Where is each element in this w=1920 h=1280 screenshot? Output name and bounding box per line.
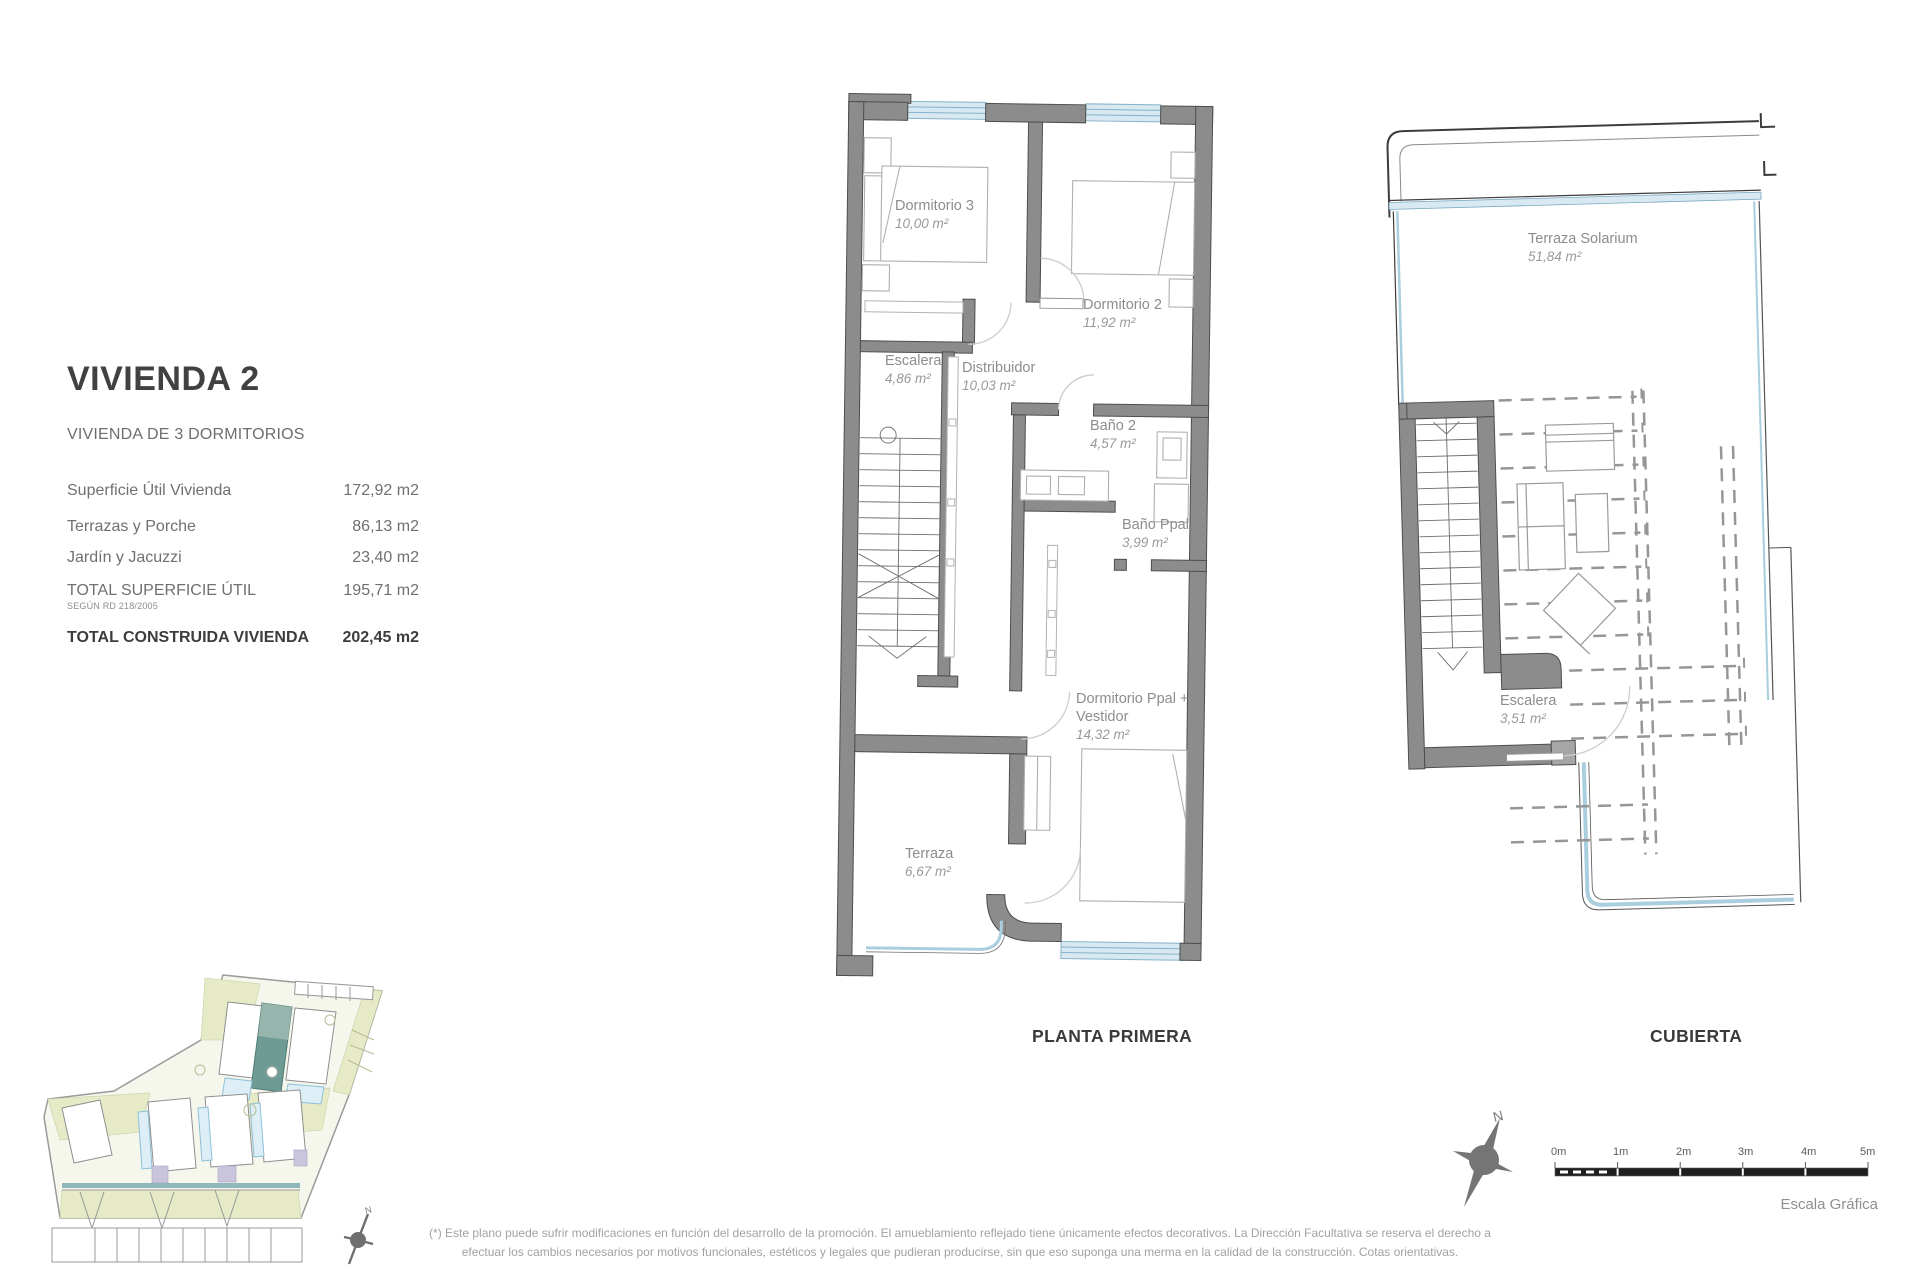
room-label-dormitorio3: Dormitorio 3 10,00 m²	[895, 197, 974, 233]
caption-cubierta: CUBIERTA	[1650, 1026, 1742, 1047]
scale-bar	[1555, 1162, 1868, 1176]
surface-row-value: 23,40 m2	[352, 549, 419, 567]
surface-row-label: Superficie Útil Vivienda	[67, 482, 231, 500]
solarium-boundary	[1393, 201, 1801, 916]
surface-total-row: TOTAL CONSTRUIDA VIVIENDA 202,45 m2	[67, 629, 419, 647]
surface-row: Superficie Útil Vivienda 172,92 m2	[67, 482, 419, 500]
scale-tick: 4m	[1801, 1146, 1816, 1158]
room-label-terraza: Terraza 6,67 m²	[905, 845, 953, 881]
north-arrow-icon	[1453, 1118, 1513, 1207]
roof-stairs	[1416, 417, 1483, 671]
room-label-dormitorio2: Dormitorio 2 11,92 m²	[1083, 296, 1162, 332]
scale-tick: 3m	[1738, 1146, 1753, 1158]
room-label-distribuidor: Distribuidor 10,03 m²	[962, 359, 1035, 395]
surface-row-label: Terrazas y Porche	[67, 518, 196, 536]
surface-row-value: 172,92 m2	[343, 482, 419, 500]
room-label-terraza-solarium: Terraza Solarium 51,84 m²	[1528, 230, 1638, 266]
room-label-escalera-p1: Escalera 4,86 m²	[885, 352, 941, 388]
page-subtitle: VIVIENDA DE 3 DORMITORIOS	[67, 426, 305, 444]
surface-row-label: TOTAL CONSTRUIDA VIVIENDA	[67, 629, 309, 647]
surface-row-label: Jardín y Jacuzzi	[67, 549, 182, 567]
room-label-banio2: Baño 2 4,57 m²	[1090, 417, 1136, 453]
roof-furniture	[1515, 423, 1619, 656]
stairs	[857, 427, 941, 659]
surface-row: Jardín y Jacuzzi 23,40 m2	[67, 549, 419, 567]
room-label-dormppal: Dormitorio Ppal + Vestidor 14,32 m²	[1076, 690, 1188, 744]
scale-tick: 1m	[1613, 1146, 1628, 1158]
room-label-escalera-cubierta: Escalera 3,51 m²	[1500, 692, 1556, 728]
surface-row-value: 195,71 m2	[343, 582, 419, 611]
room-label-banioppal: Baño Ppal 3,99 m²	[1122, 516, 1189, 552]
footnote: (*) Este plano puede sufrir modificacion…	[0, 1224, 1920, 1261]
surface-row: Terrazas y Porche 86,13 m2	[67, 518, 419, 536]
terrace-glass-edge	[866, 919, 1001, 950]
parapet-band	[1387, 113, 1777, 218]
surface-row-value: 86,13 m2	[352, 518, 419, 536]
surface-row: TOTAL SUPERFICIE ÚTIL SEGÚN RD 218/2005 …	[67, 582, 419, 611]
pergola-hooks	[1641, 386, 1746, 739]
page-title: VIVIENDA 2	[67, 360, 260, 399]
surface-row-label: TOTAL SUPERFICIE ÚTIL SEGÚN RD 218/2005	[67, 582, 256, 611]
scale-caption: Escala Gráfica	[1760, 1196, 1878, 1213]
surface-row-note: SEGÚN RD 218/2005	[67, 601, 256, 611]
footnote-line2: efectuar los cambios necesarios por moti…	[0, 1243, 1920, 1262]
pergola-dashed-grid	[1498, 388, 1745, 858]
surface-row-value: 202,45 m2	[342, 629, 419, 647]
footnote-line1: (*) Este plano puede sufrir modificacion…	[0, 1224, 1920, 1243]
scale-tick: 2m	[1676, 1146, 1691, 1158]
scale-tick: 0m	[1551, 1146, 1566, 1158]
scale-tick: 5m	[1860, 1146, 1875, 1158]
caption-planta-primera: PLANTA PRIMERA	[1032, 1026, 1192, 1047]
site-plan-minimap	[44, 975, 382, 1264]
